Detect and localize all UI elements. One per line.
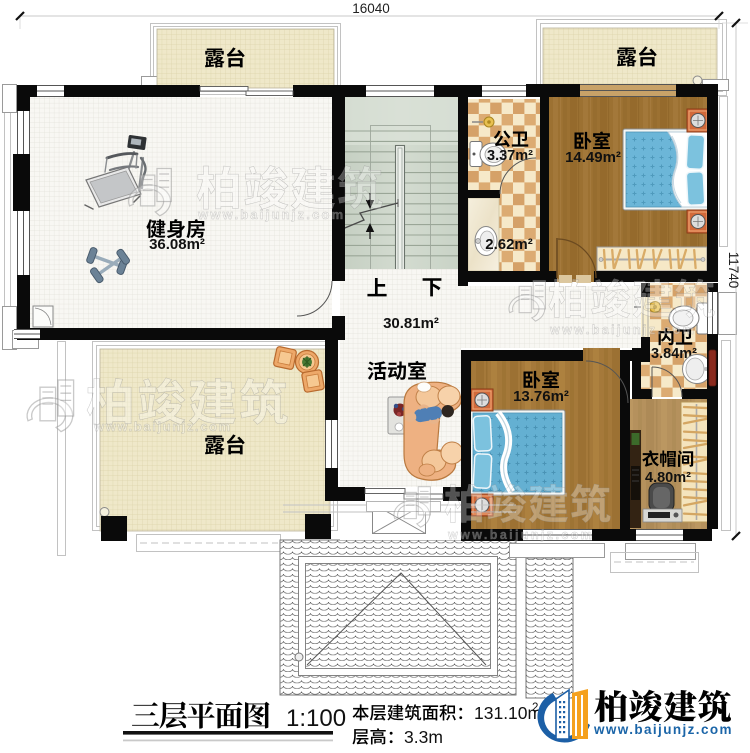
svg-text:www.baijunjz.com: www.baijunjz.com (197, 207, 345, 222)
svg-text:2.62m²: 2.62m² (485, 236, 533, 253)
svg-text:30.81m²: 30.81m² (383, 315, 439, 332)
svg-text:3.3m: 3.3m (404, 727, 443, 747)
svg-text:www.baijunjz.com: www.baijunjz.com (447, 528, 594, 542)
svg-text:13.76m²: 13.76m² (513, 388, 569, 405)
svg-text:36.08m²: 36.08m² (149, 236, 205, 253)
svg-text:www.baijunjz.com: www.baijunjz.com (549, 323, 696, 337)
svg-text:3.37m²: 3.37m² (487, 148, 533, 164)
svg-text:www.baijunjz.com: www.baijunjz.com (93, 419, 232, 434)
svg-text:11740: 11740 (726, 252, 741, 289)
svg-text:14.49m²: 14.49m² (565, 149, 621, 166)
svg-text:1:100: 1:100 (286, 705, 346, 732)
svg-text:4.80m²: 4.80m² (645, 470, 691, 486)
svg-text:2: 2 (532, 702, 538, 714)
svg-text:www.baijunjz.com: www.baijunjz.com (593, 722, 733, 737)
svg-text:16040: 16040 (352, 1, 390, 16)
